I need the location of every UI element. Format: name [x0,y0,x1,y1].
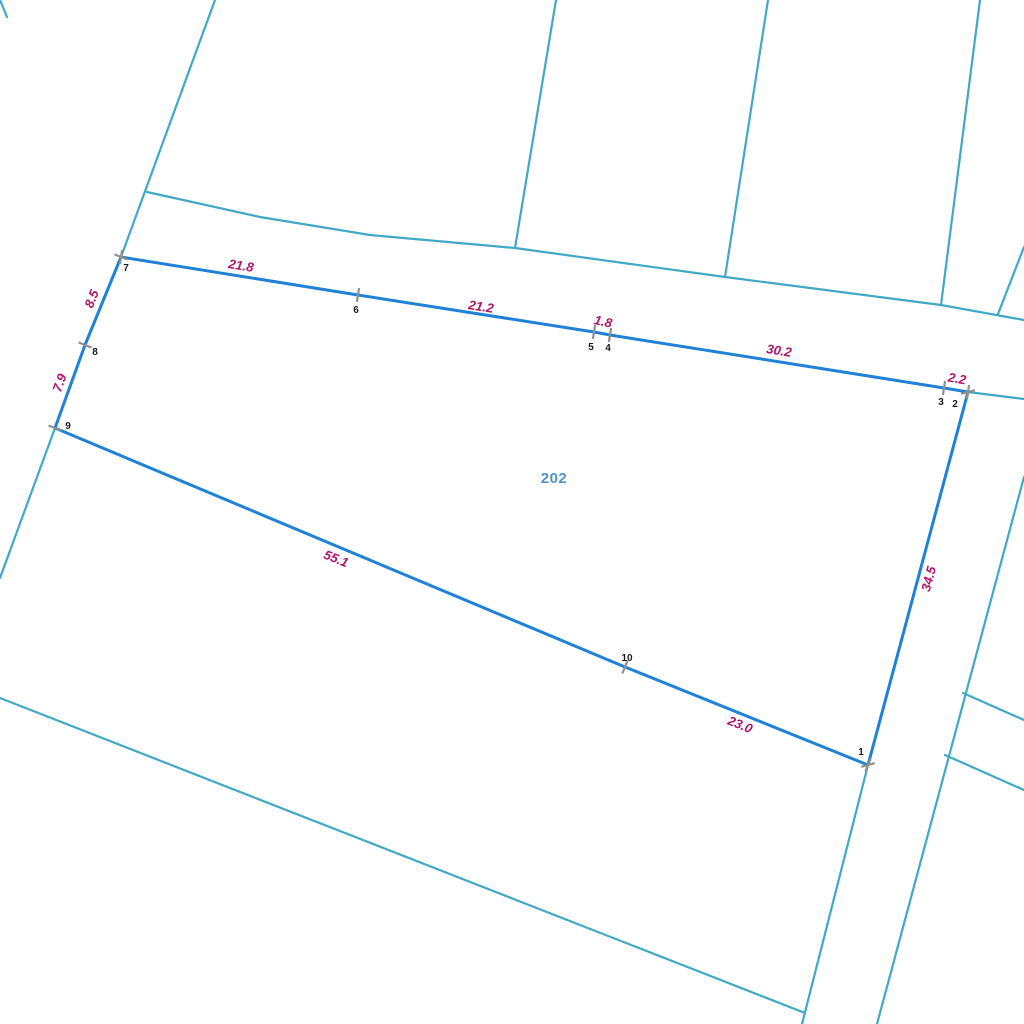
edge-length-label: 23.0 [725,712,756,736]
map-canvas[interactable]: 1234567891021.821.21.830.22.234.523.055.… [0,0,1024,1024]
southeast-parallel-line [877,477,1024,1024]
southwest-diagonal-line [0,698,805,1013]
east-boundary-extension-south [802,765,868,1024]
edge-length-label: 21.8 [226,256,255,275]
parcel-number-label: 202 [541,470,568,487]
vertex-number-label: 10 [621,653,633,664]
north-parcel-line-3 [941,0,980,305]
vertex-number-label: 3 [938,397,944,408]
vertex-number-label: 9 [65,421,71,432]
north-parcel-line-1 [515,0,556,248]
southeast-branch-line-2 [945,755,1024,790]
west-boundary-extension [0,428,55,578]
parcel-boundary-polygon[interactable] [55,257,968,765]
edge-length-label: 30.2 [765,341,793,360]
vertex-number-label: 1 [858,747,864,758]
vertex-number-label: 4 [605,343,611,354]
edge-length-label: 7.9 [49,371,70,394]
north-boundary-extension-east [968,392,1024,399]
cadastral-map-svg: 1234567891021.821.21.830.22.234.523.055.… [0,0,1024,1024]
vertex-number-label: 2 [952,399,958,410]
southeast-branch-line-1 [963,693,1024,720]
edge-length-label: 8.5 [81,287,102,310]
vertex-tick-mark [120,250,122,264]
vertex-tick-mark [943,381,945,395]
northeast-corner-line [998,247,1024,314]
vertex-number-label: 6 [353,305,359,316]
northwest-corner-stub-line [0,0,7,17]
vertex-number-label: 7 [123,263,129,274]
west-boundary-line [121,0,215,257]
vertex-number-label: 8 [92,347,98,358]
vertex-tick-mark [357,288,359,302]
north-parcel-line-2 [725,0,768,277]
north-road-line [147,192,1024,320]
vertex-number-label: 5 [588,342,594,353]
edge-length-label: 2.2 [946,369,968,387]
